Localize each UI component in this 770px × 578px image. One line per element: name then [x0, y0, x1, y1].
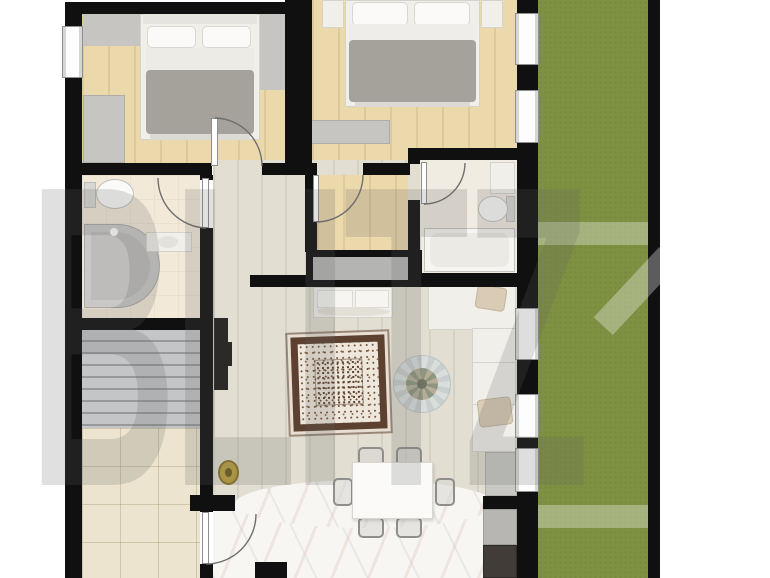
bedroom-2-nightstand: [481, 0, 503, 28]
sofa-cushion: [317, 290, 353, 308]
bedroom-1-blanket: [146, 70, 254, 134]
bedroom-2-pillow: [414, 2, 470, 26]
door-leaf-bathroom-2: [421, 162, 427, 204]
kitchen-counter: [483, 509, 517, 545]
wall: [517, 65, 538, 90]
wall: [408, 148, 420, 164]
dining-chair: [358, 517, 384, 538]
toilet-icon: [478, 196, 508, 222]
sofa-pillow: [474, 284, 507, 312]
watermark-band: [538, 222, 648, 245]
bedroom-2-pillow: [352, 2, 408, 26]
staircase: [82, 330, 200, 428]
gold-vase-center: [225, 468, 232, 477]
bedroom-2-dresser: [310, 120, 390, 144]
sink-bowl: [158, 236, 178, 248]
wall: [363, 163, 410, 175]
rug-medallion: [314, 358, 364, 406]
dining-chair: [333, 478, 353, 506]
wall: [517, 360, 538, 394]
window: [62, 26, 83, 78]
sofa-cushion: [355, 290, 389, 308]
tv-mount: [226, 342, 232, 366]
bedroom-2-nightstand: [322, 0, 344, 28]
wall: [200, 564, 213, 578]
wall: [483, 496, 517, 509]
door-leaf-entry: [202, 512, 209, 564]
bedroom-2-blanket: [349, 40, 476, 102]
bathtub-faucet: [110, 228, 118, 236]
wall: [517, 143, 538, 308]
kitchen-cabinet-dark: [483, 545, 517, 578]
wall: [200, 228, 213, 512]
window: [515, 13, 539, 65]
floor-plan-canvas: BLITZ: [0, 0, 770, 578]
wall: [517, 438, 538, 448]
dining-table: [352, 462, 433, 519]
wall: [517, 0, 538, 13]
wall: [408, 148, 517, 160]
ornate-rug: [290, 334, 387, 431]
wall: [65, 2, 82, 578]
wall: [250, 275, 308, 287]
bedroom-2-bed-foot: [355, 102, 470, 107]
plant-center: [417, 379, 427, 389]
wall: [408, 200, 420, 280]
bedroom-1-pillow: [202, 26, 251, 48]
window: [515, 394, 539, 438]
window: [515, 448, 539, 492]
wall: [190, 495, 235, 511]
bathroom-2-cabinet: [490, 162, 515, 194]
sectional-sofa-long: [472, 328, 516, 452]
door-leaf-bedroom-2: [313, 175, 319, 222]
toilet-icon: [96, 179, 134, 209]
wall: [285, 0, 312, 170]
dining-chair: [435, 478, 455, 506]
door-leaf-bathroom-1: [202, 178, 209, 228]
dining-chair: [396, 517, 422, 538]
wall: [65, 318, 213, 330]
bedroom-1-headboard: [143, 14, 257, 24]
bedroom-1-wardrobe-top: [83, 14, 143, 46]
bedroom-2-entry-floor: [317, 175, 408, 252]
kitchen-unit: [485, 452, 517, 496]
wall: [255, 562, 287, 578]
window: [515, 90, 539, 143]
sofa-pillow: [476, 396, 513, 428]
wall: [65, 2, 312, 14]
toilet-tank: [84, 182, 96, 208]
door-leaf-bedroom-1: [211, 118, 218, 166]
porch-floor: [82, 428, 200, 578]
bedroom-1-shelf: [84, 146, 106, 158]
bathtub-basin: [430, 233, 509, 267]
window: [515, 308, 539, 360]
sofa-throw: [318, 307, 390, 316]
sofa-seam: [472, 362, 516, 363]
wall: [408, 273, 517, 287]
wall: [65, 163, 212, 175]
wall: [517, 492, 538, 578]
bedroom-2-closet: [306, 250, 422, 287]
bedroom-1-bed-foot: [150, 134, 250, 140]
bedroom-1-pillow: [147, 26, 196, 48]
watermark-band: [538, 505, 648, 528]
